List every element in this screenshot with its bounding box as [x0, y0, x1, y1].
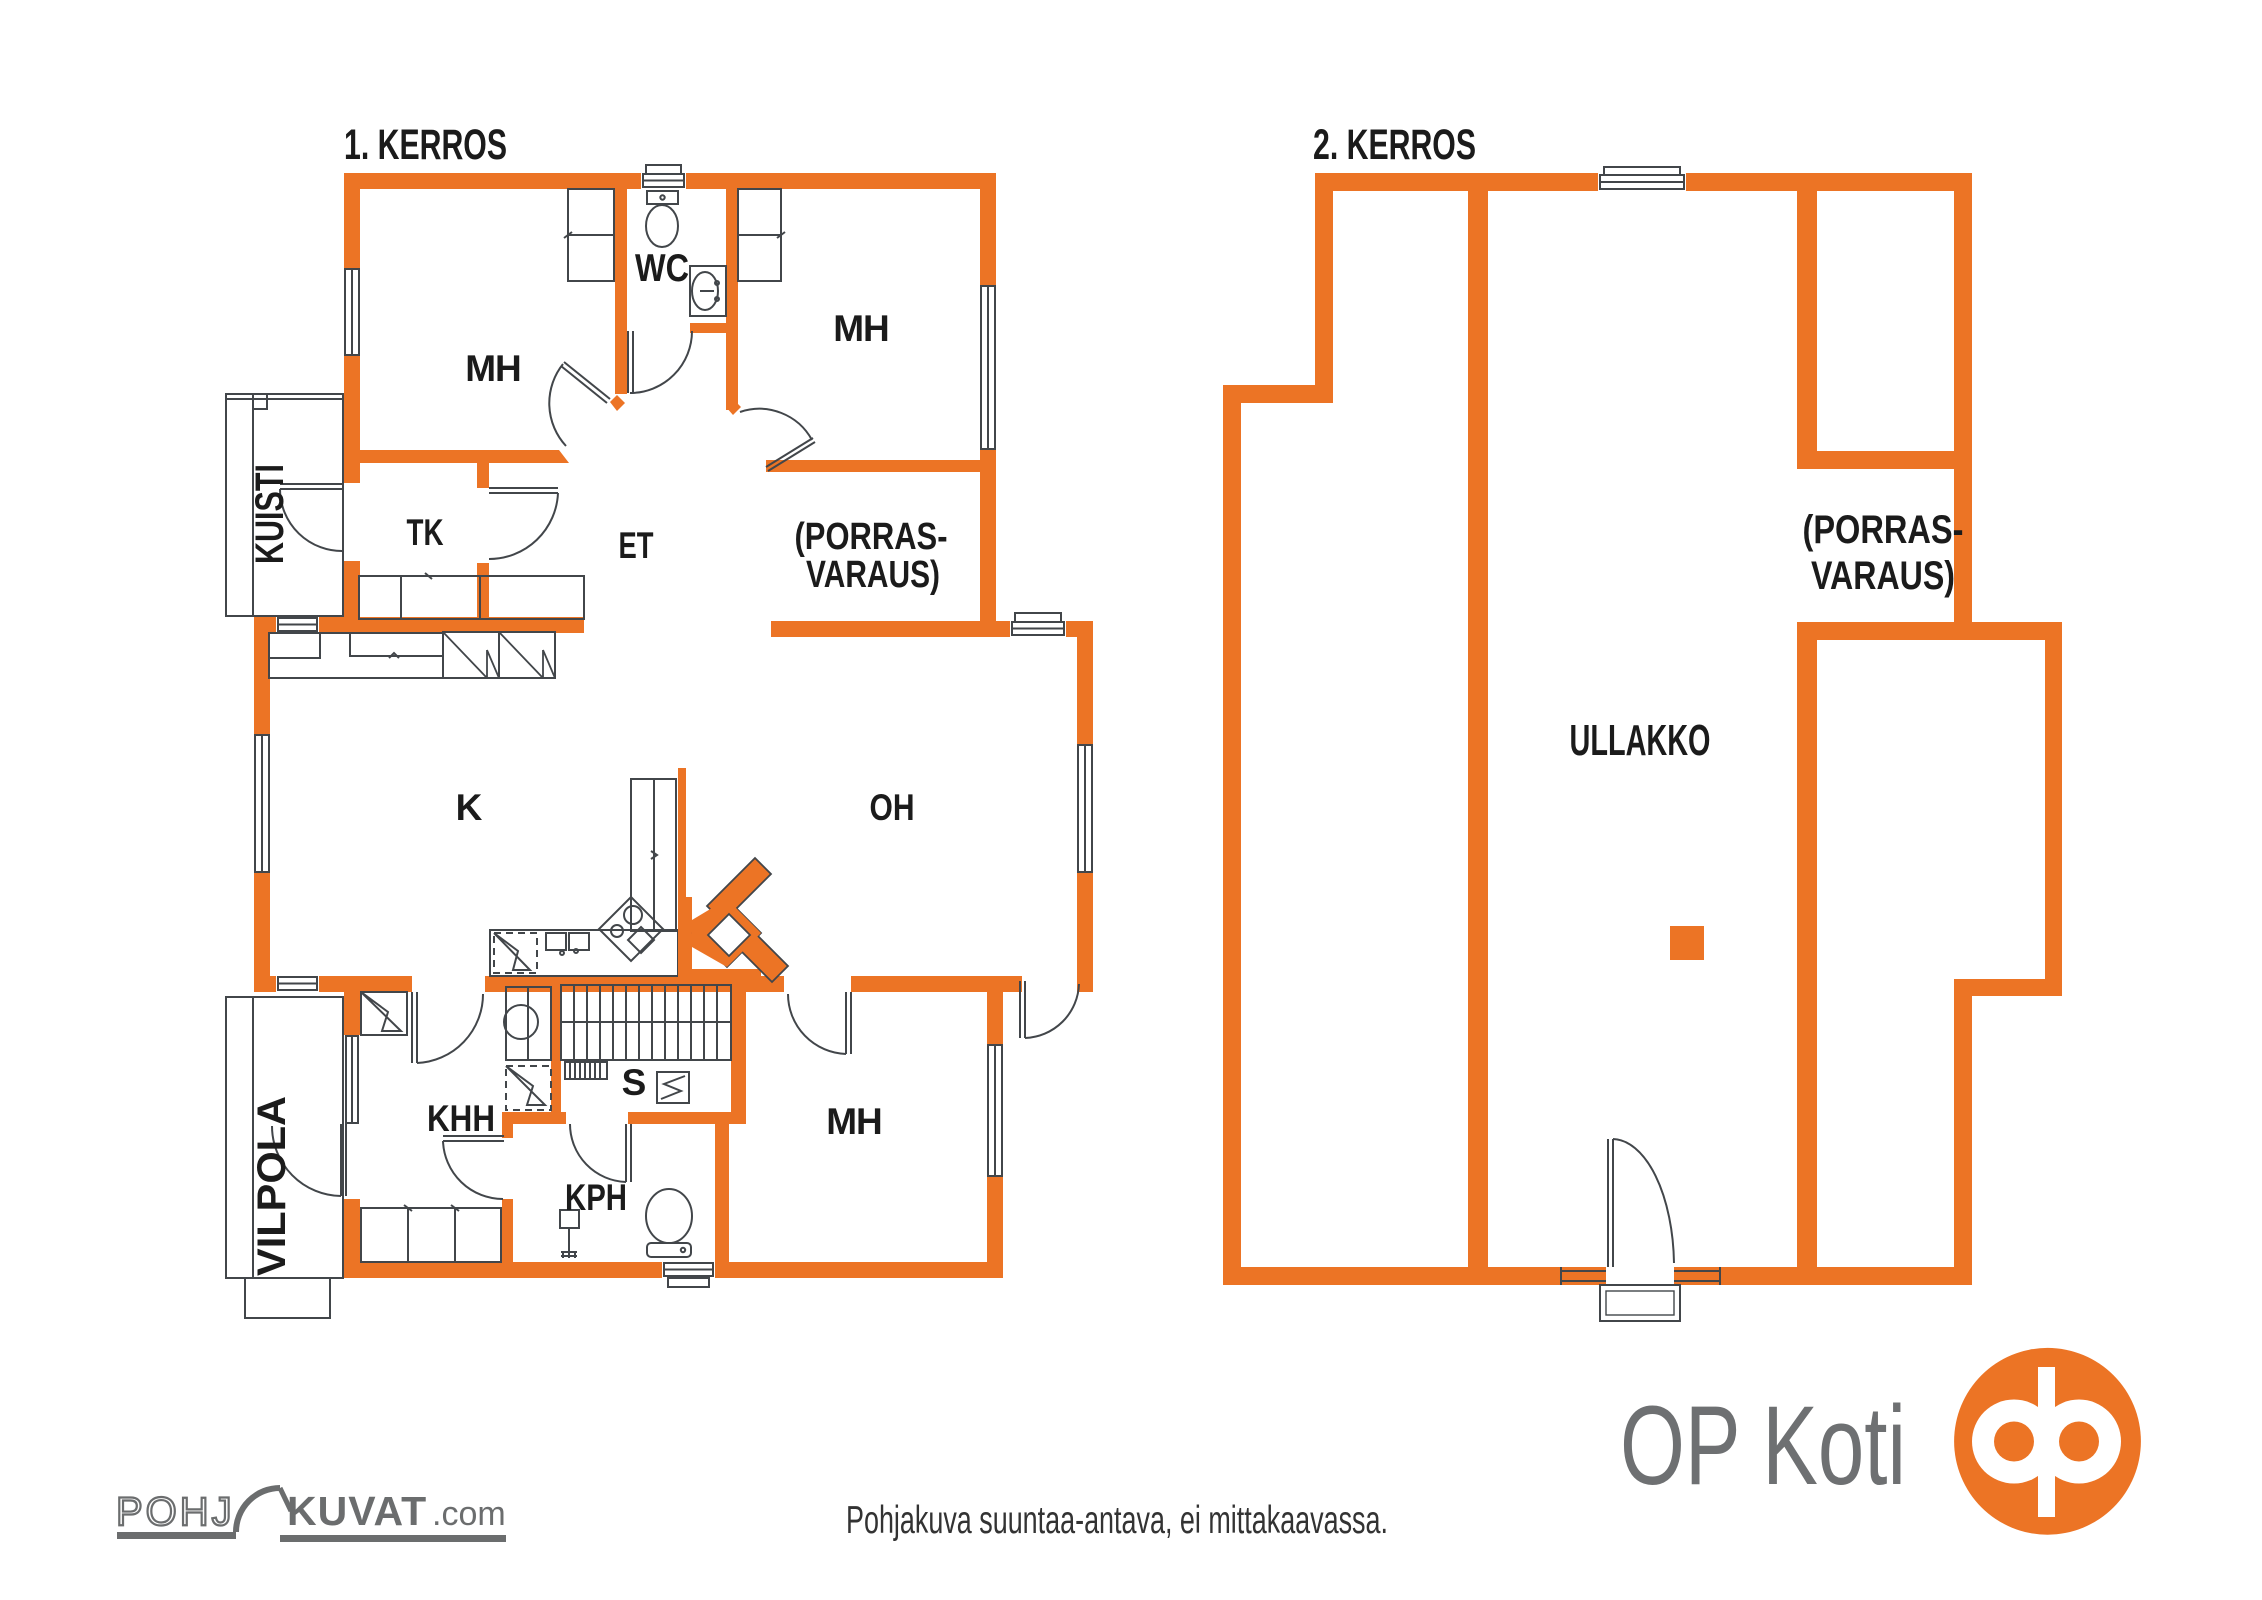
svg-text:OH: OH — [870, 787, 915, 828]
svg-text:MH: MH — [833, 308, 889, 349]
svg-text:ULLAKKO: ULLAKKO — [1570, 716, 1711, 765]
svg-text:VILPOLA: VILPOLA — [250, 1096, 294, 1276]
svg-text:TK: TK — [407, 512, 444, 553]
svg-text:KPH: KPH — [565, 1177, 627, 1218]
svg-text:MH: MH — [826, 1101, 882, 1142]
svg-text:K: K — [456, 787, 483, 828]
svg-text:.com: .com — [432, 1495, 506, 1533]
svg-text:KUISTI: KUISTI — [248, 464, 292, 564]
svg-text:(PORRAS-: (PORRAS- — [795, 516, 948, 558]
svg-text:ET: ET — [619, 525, 654, 566]
svg-text:POHJ: POHJ — [116, 1490, 235, 1534]
svg-text:S: S — [622, 1062, 647, 1103]
svg-text:1. KERROS: 1. KERROS — [344, 121, 507, 169]
svg-text:Pohjakuva suuntaa-antava, ei m: Pohjakuva suuntaa-antava, ei mittakaavas… — [846, 1499, 1388, 1542]
svg-text:WC: WC — [635, 247, 689, 290]
svg-text:OP Koti: OP Koti — [1620, 1383, 1906, 1508]
svg-text:KHH: KHH — [427, 1098, 495, 1139]
svg-text:MH: MH — [465, 348, 521, 389]
svg-text:VARAUS): VARAUS) — [1811, 554, 1955, 598]
svg-text:VARAUS): VARAUS) — [806, 554, 940, 596]
svg-text:(PORRAS-: (PORRAS- — [1803, 508, 1964, 552]
svg-text:2. KERROS: 2. KERROS — [1313, 121, 1476, 169]
svg-text:KUVAT: KUVAT — [287, 1488, 427, 1534]
